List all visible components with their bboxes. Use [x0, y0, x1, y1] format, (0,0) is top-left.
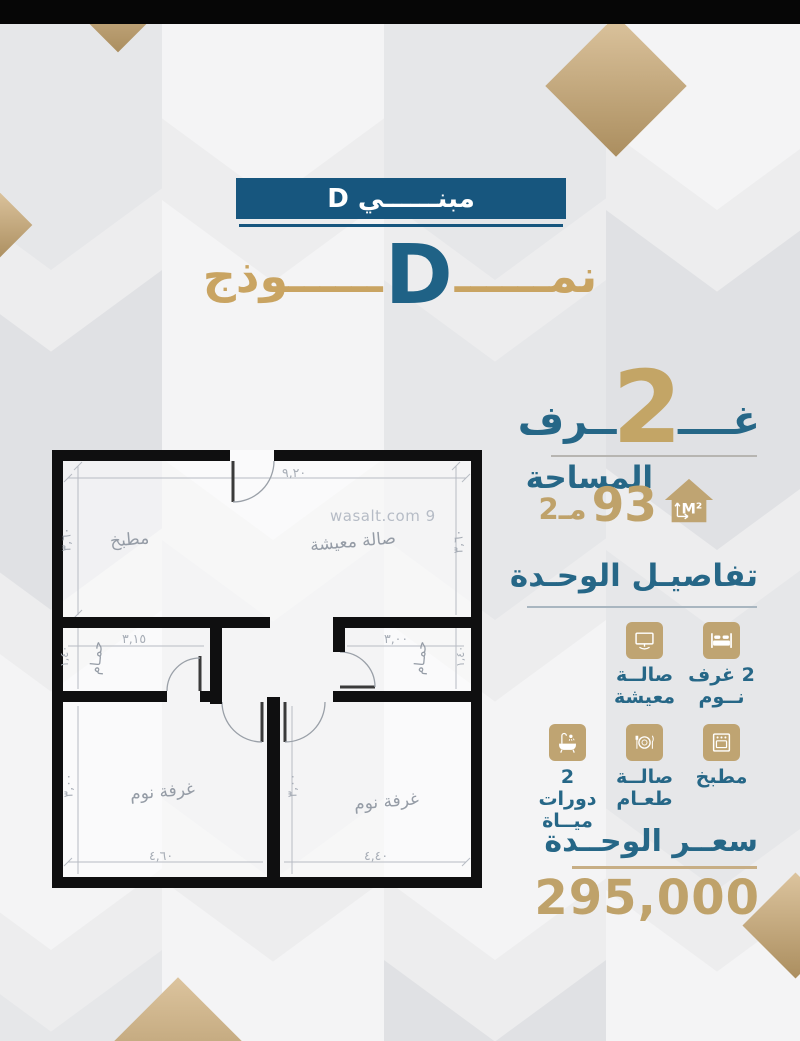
model-word-left: ــــــوذج — [203, 236, 383, 316]
price-value: 295,000 — [534, 870, 760, 926]
price-label: سعــر الوحــدة — [544, 824, 758, 859]
price-divider — [572, 866, 757, 869]
house-area-icon: M² — [662, 474, 716, 528]
model-letter: D — [385, 236, 453, 316]
rooms-word-left: ــرف — [518, 398, 617, 444]
feature-kitchen: مطبخ — [696, 724, 748, 832]
dim-top-width: ٩,٢٠ — [282, 465, 306, 480]
room-label-bath-right: حمـام — [411, 640, 430, 675]
dim-bath-left-height: ١,٤٠ — [58, 646, 71, 667]
dim-kitchen-height: ٣,٦٠ — [59, 527, 74, 551]
feature-bathrooms: 2 دورات ميــاة — [529, 724, 606, 832]
dim-bedroom-right-height: ٣,٠٠ — [285, 773, 300, 797]
banner-underline — [239, 224, 563, 227]
dim-living-height: ٣,٦٠ — [451, 529, 466, 553]
model-title: ــــــوذج D نمــــــ — [0, 236, 800, 316]
unit-details-divider — [527, 606, 757, 608]
rooms-divider — [551, 455, 757, 457]
dim-bath-left-width: ٣,١٥ — [122, 631, 146, 646]
feature-dining-room: صالــة طعـام — [616, 724, 673, 832]
model-word-right: نمــــــ — [455, 236, 597, 316]
bath-icon — [549, 724, 586, 761]
room-label-kitchen: مطبخ — [109, 528, 150, 551]
bg-chevron — [162, 0, 384, 200]
feature-label: مطبخ — [696, 766, 748, 788]
oven-icon — [703, 724, 740, 761]
tv-icon — [626, 622, 663, 659]
bed-icon — [703, 622, 740, 659]
unit-details-title: تفاصيـل الوحـدة — [510, 558, 758, 594]
area-row: M² 93 مـ2 — [539, 474, 716, 528]
building-title-banner: مبنــــــي D — [236, 178, 566, 219]
dining-icon — [626, 724, 663, 761]
features-grid: 2 غرف نــوم صالــة معيشة — [528, 622, 760, 832]
dim-bath-right-height: ١,٤٠ — [454, 646, 467, 667]
bg-chevron — [384, 960, 606, 1041]
floor-plan: wasalt.com 9 ٩,٢٠ ٣,٦٠ ٣,٦٠ مطبخ صالة مع… — [52, 450, 482, 888]
area-unit: مـ2 — [539, 490, 587, 528]
rooms-word-right: غــــ — [678, 398, 760, 444]
feature-living-room: صالــة معيشة — [614, 622, 675, 708]
dim-bedroom-left-height: ٣,٠٠ — [61, 773, 76, 797]
feature-bedrooms: 2 غرف نــوم — [688, 622, 755, 708]
dim-bedroom-right-width: ٤,٤٠ — [364, 848, 388, 863]
area-value: 93 — [592, 484, 657, 528]
feature-label: 2 غرف نــوم — [688, 664, 755, 708]
building-title: مبنــــــي D — [327, 184, 475, 214]
poster-canvas: مبنــــــي D ــــــوذج D نمــــــ — [0, 0, 800, 1041]
top-letterbox-bar — [0, 0, 800, 24]
feature-label: صالــة معيشة — [614, 664, 675, 708]
watermark: wasalt.com 9 — [330, 507, 436, 525]
dim-bedroom-left-width: ٤,٦٠ — [149, 848, 173, 863]
dim-bath-right-width: ٣,٠٠ — [384, 631, 408, 646]
rooms-count-row: ــرف 2 غــــ — [518, 362, 760, 454]
feature-label: 2 دورات ميــاة — [529, 766, 606, 832]
house-area-icon-label: M² — [682, 502, 703, 518]
rooms-count: 2 — [612, 362, 682, 454]
room-label-bath-left: حمـام — [87, 640, 106, 675]
feature-label: صالــة طعـام — [616, 766, 673, 810]
